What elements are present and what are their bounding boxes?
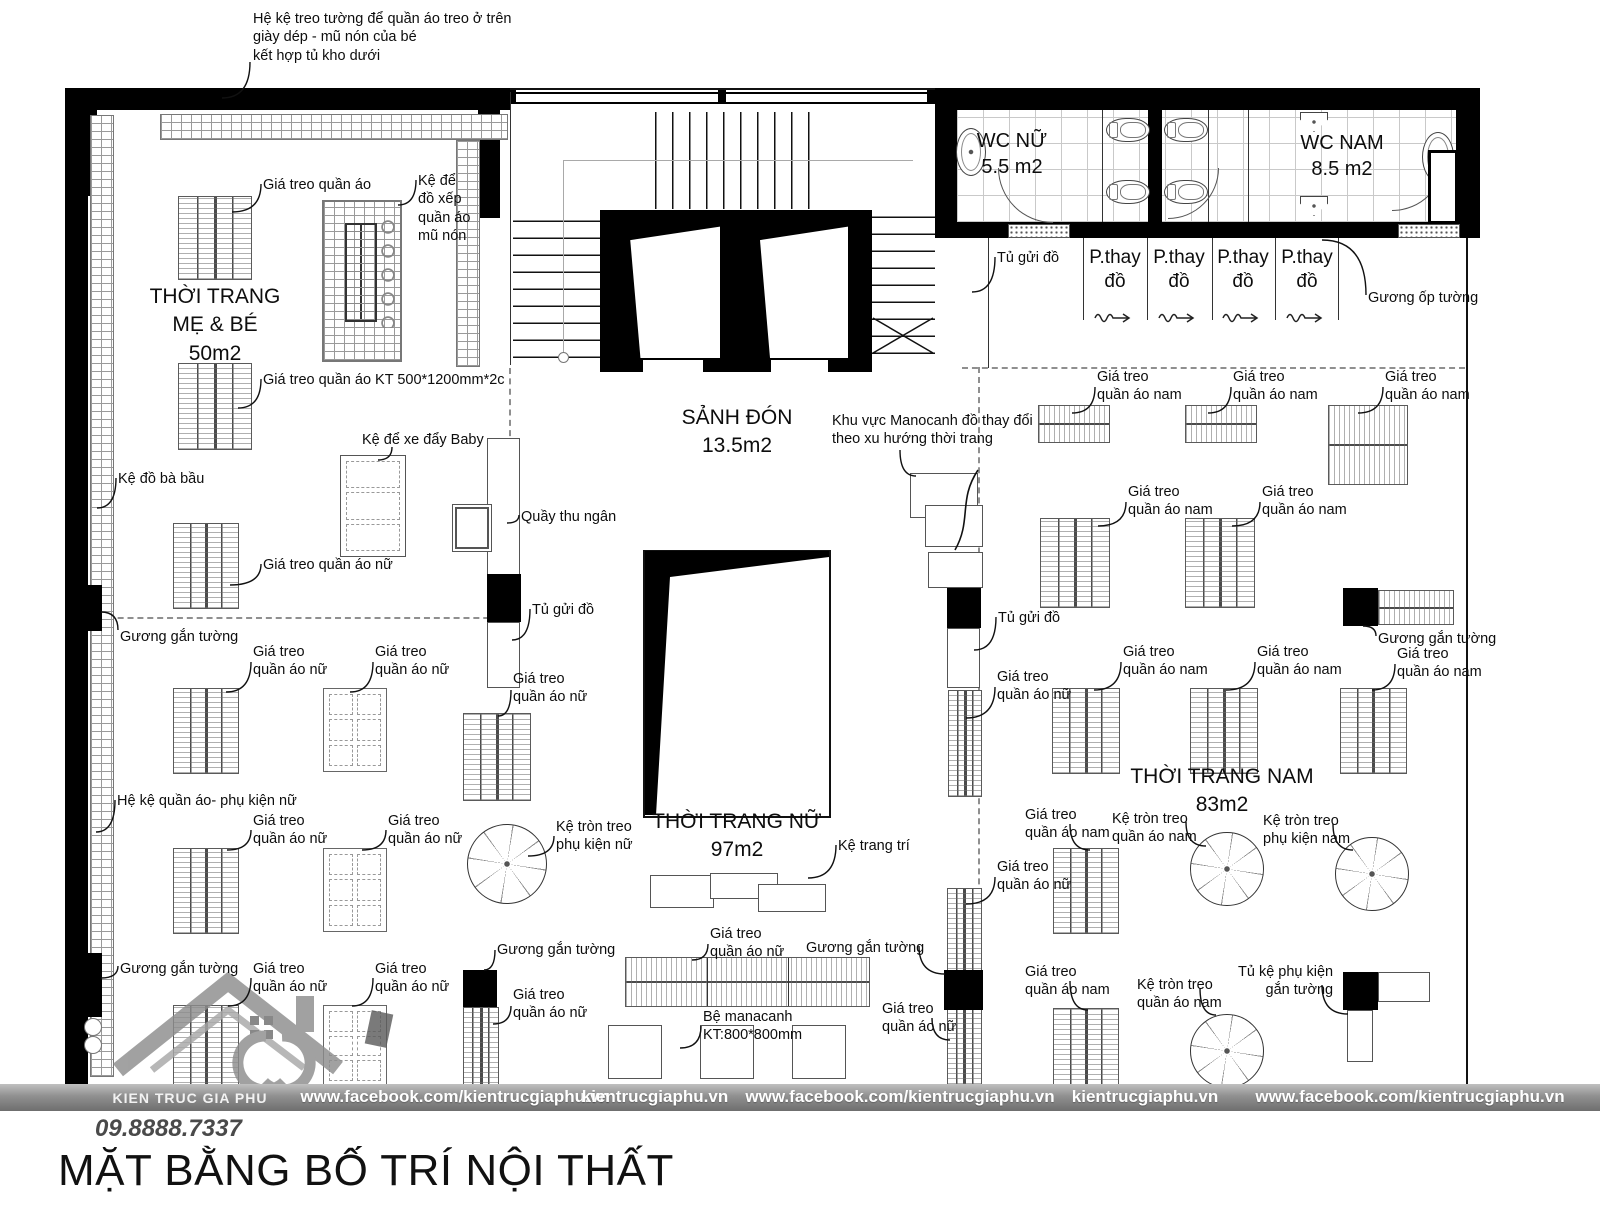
footer-watermark: www.facebook.com/kientrucgiaphu.vn	[300, 1087, 609, 1107]
clothes-rack	[173, 1005, 239, 1089]
locker-front-line	[988, 238, 989, 368]
mirror-block	[947, 588, 981, 628]
round-rack	[1190, 832, 1264, 906]
wc-stall-partition	[1102, 110, 1103, 222]
clothes-rack	[1340, 688, 1407, 774]
mirror-block	[65, 953, 102, 1017]
door-threshold	[1008, 224, 1070, 238]
clothes-rack	[1185, 405, 1257, 443]
sink-icon	[956, 128, 986, 176]
locker	[947, 628, 980, 688]
elevator-door-gap	[643, 360, 703, 372]
wall-wc-left	[935, 88, 957, 238]
footer-watermark: kientrucgiaphu.vn	[1072, 1087, 1218, 1107]
mannequin-display	[928, 552, 983, 588]
clothes-rack	[1185, 518, 1255, 608]
toilet-icon	[1106, 118, 1150, 142]
mannequin-base	[792, 1025, 846, 1079]
mirror-block	[463, 970, 497, 1007]
fitting-partition	[1083, 238, 1084, 320]
clothes-rack	[1040, 518, 1110, 608]
clothes-rack	[463, 713, 531, 801]
wc-stall-partition	[1208, 110, 1209, 222]
clothes-rack	[173, 523, 239, 609]
stair-guide-line-h	[563, 160, 913, 161]
mirror-block	[1343, 972, 1378, 1010]
elevator-door-gap	[771, 360, 828, 372]
clothes-rack	[178, 363, 252, 450]
wall-shelf-top	[160, 114, 508, 140]
hat-display-column	[378, 215, 398, 329]
fitting-partition	[1212, 238, 1213, 320]
fitting-partition	[1147, 238, 1148, 320]
clothes-rack	[1052, 688, 1120, 774]
accessory-cabinet	[1378, 972, 1430, 1002]
zone-dash-right	[962, 367, 1465, 369]
phone-number: 09.8888.7337	[95, 1115, 242, 1143]
stair-treads-left	[513, 212, 601, 358]
toilet-icon	[1106, 180, 1150, 204]
clothes-rack-long	[625, 957, 870, 1007]
folded-clothes-shelf	[322, 200, 402, 362]
clothes-rack	[173, 848, 239, 934]
mirror-block	[1343, 588, 1378, 626]
wall-wc-divider	[1148, 110, 1162, 224]
cashier-stool	[455, 507, 489, 549]
round-rack	[1335, 837, 1409, 911]
mannequin-base	[608, 1025, 662, 1079]
mirror-block	[487, 574, 521, 622]
wall-wc-right	[1456, 88, 1480, 234]
zone-dash-left	[88, 617, 509, 619]
company-name: KIEN TRUC GIA PHU	[113, 1090, 268, 1106]
round-rack	[1190, 1014, 1264, 1088]
locker	[487, 622, 520, 688]
baby-stroller-shelf	[340, 455, 406, 557]
shelf-rack	[323, 688, 387, 772]
mannequin-display	[925, 505, 983, 547]
clothes-rack	[948, 690, 982, 797]
toilet-icon	[1164, 118, 1208, 142]
clothes-rack	[1053, 1008, 1119, 1096]
floor-plan	[0, 0, 1600, 1205]
wall-shelf-round	[84, 1036, 102, 1054]
clothes-rack	[1378, 590, 1454, 625]
accessory-cabinet	[1347, 1010, 1373, 1062]
clothes-rack	[463, 1007, 499, 1089]
mirror-block	[65, 585, 102, 631]
shelf-rack	[323, 848, 387, 932]
clothes-rack	[1190, 688, 1258, 774]
clothes-rack	[1328, 405, 1408, 485]
fitting-partition	[1275, 238, 1276, 320]
wc-stall-partition	[1248, 110, 1249, 222]
floor-plan-canvas: Hệ kệ treo tường để quần áo treo ở trên …	[0, 0, 1600, 1205]
stair-treads-right	[872, 212, 935, 354]
watermark-bar: KIEN TRUC GIA PHU www.facebook.com/kient…	[0, 1084, 1600, 1111]
drawing-title: MẶT BẰNG BỐ TRÍ NỘI THẤT	[58, 1146, 674, 1196]
clothes-rack	[1053, 848, 1119, 934]
round-rack	[467, 824, 547, 904]
wall-divider-stairs	[478, 88, 500, 218]
mannequin-base	[700, 1025, 754, 1079]
fitting-partition	[1338, 238, 1339, 320]
wall-top	[65, 88, 510, 110]
clothes-rack	[173, 688, 239, 774]
door-threshold	[1398, 224, 1460, 238]
clothes-rack	[1038, 405, 1110, 443]
decor-shelf	[758, 884, 826, 912]
guide-node	[558, 352, 569, 363]
clothes-rack	[178, 196, 252, 280]
wc-side-room	[1428, 150, 1458, 224]
mirror-block	[944, 970, 983, 1010]
decor-shelf	[650, 875, 714, 908]
railing-post	[718, 90, 726, 103]
central-void	[643, 550, 831, 818]
stair-boundary	[510, 92, 511, 365]
footer-watermark: www.facebook.com/kientrucgiaphu.vn	[745, 1087, 1054, 1107]
footer-watermark: www.facebook.com/kientrucgiaphu.vn	[1255, 1087, 1564, 1107]
footer-watermark: kientrucgiaphu.vn	[582, 1087, 728, 1107]
inner-rack	[345, 223, 377, 323]
shelf-rack	[323, 1005, 387, 1087]
wall-wc-top	[935, 88, 1480, 110]
wall-shelf-stair-side	[456, 140, 480, 367]
wall-shelf-round	[84, 1018, 102, 1036]
railing-post	[927, 90, 935, 103]
stair-guide-line-v	[563, 160, 564, 356]
